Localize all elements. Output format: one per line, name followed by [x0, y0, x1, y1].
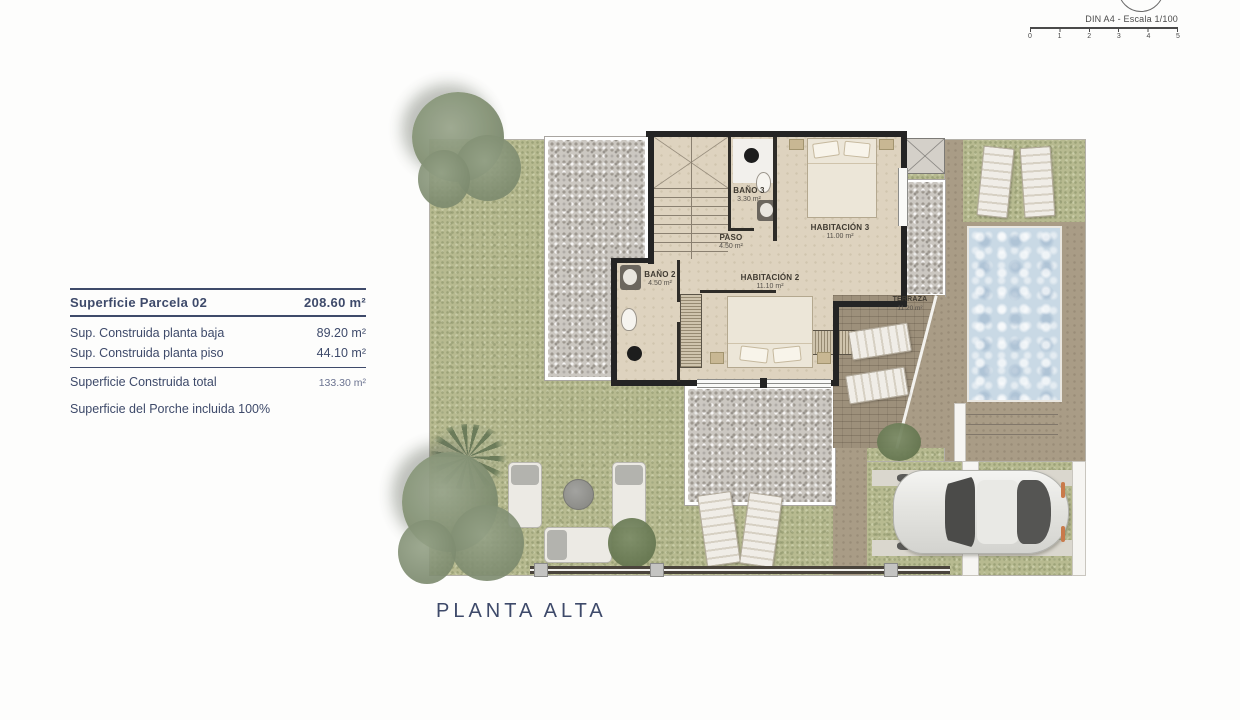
sink-bath3 [760, 203, 773, 217]
room-label-bano3: BAÑO 3 3.30 m² [719, 186, 779, 205]
swimming-pool [967, 226, 1062, 402]
legend-rule-top [70, 288, 366, 290]
sofa-back [547, 530, 567, 560]
fence-post [534, 563, 548, 577]
round-table [563, 479, 594, 510]
car-windshield [945, 476, 975, 548]
planta-baja-value: 89.20 m² [317, 326, 366, 340]
bed-fold [808, 163, 876, 164]
wall-right-lower [833, 301, 839, 385]
tree [418, 150, 470, 208]
wall-left-upper [648, 131, 654, 264]
fence-post [650, 563, 664, 577]
bed-fold [728, 343, 812, 344]
room-name: HABITACIÓN 3 [790, 223, 890, 233]
planta-baja-label: Sup. Construida planta baja [70, 326, 224, 340]
room-name: HABITACIÓN 2 [720, 273, 820, 283]
bed-hab3 [807, 138, 877, 218]
tree [398, 520, 456, 584]
porche-note: Superficie del Porche incluida 100% [70, 402, 366, 416]
bush [608, 518, 656, 568]
pillow [772, 346, 801, 364]
pool-step [958, 434, 1058, 435]
room-area: 11.20 m² [880, 305, 940, 313]
room-label-hab2: HABITACIÓN 2 11.10 m² [720, 273, 820, 292]
legend-rule-mid2 [70, 367, 366, 368]
nightstand [817, 352, 831, 364]
room-label-bano2: BAÑO 2 4.50 m² [625, 270, 695, 289]
wall-stairs-bath3 [728, 137, 731, 229]
room-name: PASO [701, 233, 761, 243]
nightstand [710, 352, 724, 364]
car-taillight [1061, 526, 1065, 542]
scale-ticks [1030, 27, 1178, 32]
gravel-roof-porch [685, 386, 835, 505]
room-area: 4.50 m² [701, 243, 761, 252]
shower-drain-icon [627, 346, 642, 361]
plan-title: PLANTA ALTA [436, 600, 607, 623]
garden-path [833, 448, 867, 575]
car-taillight [1061, 482, 1065, 498]
planta-piso-label: Sup. Construida planta piso [70, 346, 224, 360]
room-area: 4.50 m² [625, 280, 695, 289]
parcel-title-value: 208.60 m² [304, 295, 366, 310]
sun-lounger [1020, 146, 1056, 218]
scale-numbers: 0 1 2 3 4 5 [1028, 33, 1180, 40]
wall-step [611, 258, 653, 263]
wall-left-lower [611, 258, 617, 386]
scale-tick-0: 0 [1028, 33, 1032, 40]
fence-post [884, 563, 898, 577]
wall-bath2-right2 [677, 322, 680, 382]
total-label: Superficie Construida total [70, 375, 217, 389]
room-name: BAÑO 3 [719, 186, 779, 196]
nightstand [879, 139, 894, 150]
scale-tick-2: 2 [1087, 33, 1091, 40]
tree [450, 505, 524, 581]
scale-tick-4: 4 [1146, 33, 1150, 40]
toilet-bath2 [621, 308, 637, 331]
bed-hab2 [727, 296, 813, 368]
gravel-strip-right [905, 180, 945, 296]
armchair-back [615, 465, 643, 485]
scale-tick-1: 1 [1058, 33, 1062, 40]
skylight [905, 138, 945, 174]
surface-legend: Superficie Parcela 02 208.60 m² Sup. Con… [70, 288, 366, 416]
scale-tick-3: 3 [1117, 33, 1121, 40]
room-name: BAÑO 2 [625, 270, 695, 280]
pillow [739, 345, 769, 363]
total-value: 133.30 m² [319, 377, 366, 389]
shower-drain-icon [744, 148, 759, 163]
armchair-back [511, 465, 539, 485]
scale-label: DIN A4 - Escala 1/100 [1020, 14, 1178, 24]
stairs-centerline [691, 137, 692, 259]
car-roof [977, 480, 1019, 544]
room-area: 3.30 m² [719, 196, 779, 205]
pool-step [958, 414, 1058, 415]
room-label-paso: PASO 4.50 m² [701, 233, 761, 252]
pillow [812, 140, 840, 158]
window-post [760, 378, 767, 388]
scale-bar: DIN A4 - Escala 1/100 0 1 2 3 4 5 [1020, 0, 1190, 48]
legend-rule-mid1 [70, 315, 366, 317]
car [893, 468, 1069, 556]
pillow [843, 141, 870, 159]
room-area: 11.00 m² [790, 233, 890, 242]
north-symbol-icon [1118, 0, 1164, 12]
car-rear-window [1017, 480, 1051, 544]
bush [877, 423, 921, 461]
scale-tick-5: 5 [1176, 33, 1180, 40]
room-area: 11.10 m² [720, 283, 820, 292]
nightstand [789, 139, 804, 150]
wall-bath3-bottom [728, 228, 754, 231]
window-hab3 [898, 168, 908, 226]
floor-plan-page: DIN A4 - Escala 1/100 0 1 2 3 4 5 Superf… [0, 0, 1240, 720]
wardrobe-hab2 [680, 294, 702, 368]
parcel-title-label: Superficie Parcela 02 [70, 295, 207, 310]
pool-step [958, 424, 1058, 425]
room-name: TERRAZA [880, 296, 940, 305]
parking-edge [1073, 462, 1085, 575]
planta-piso-value: 44.10 m² [317, 346, 366, 360]
room-label-terraza: TERRAZA 11.20 m² [880, 296, 940, 313]
room-label-hab3: HABITACIÓN 3 11.00 m² [790, 223, 890, 242]
sofa [544, 527, 612, 563]
